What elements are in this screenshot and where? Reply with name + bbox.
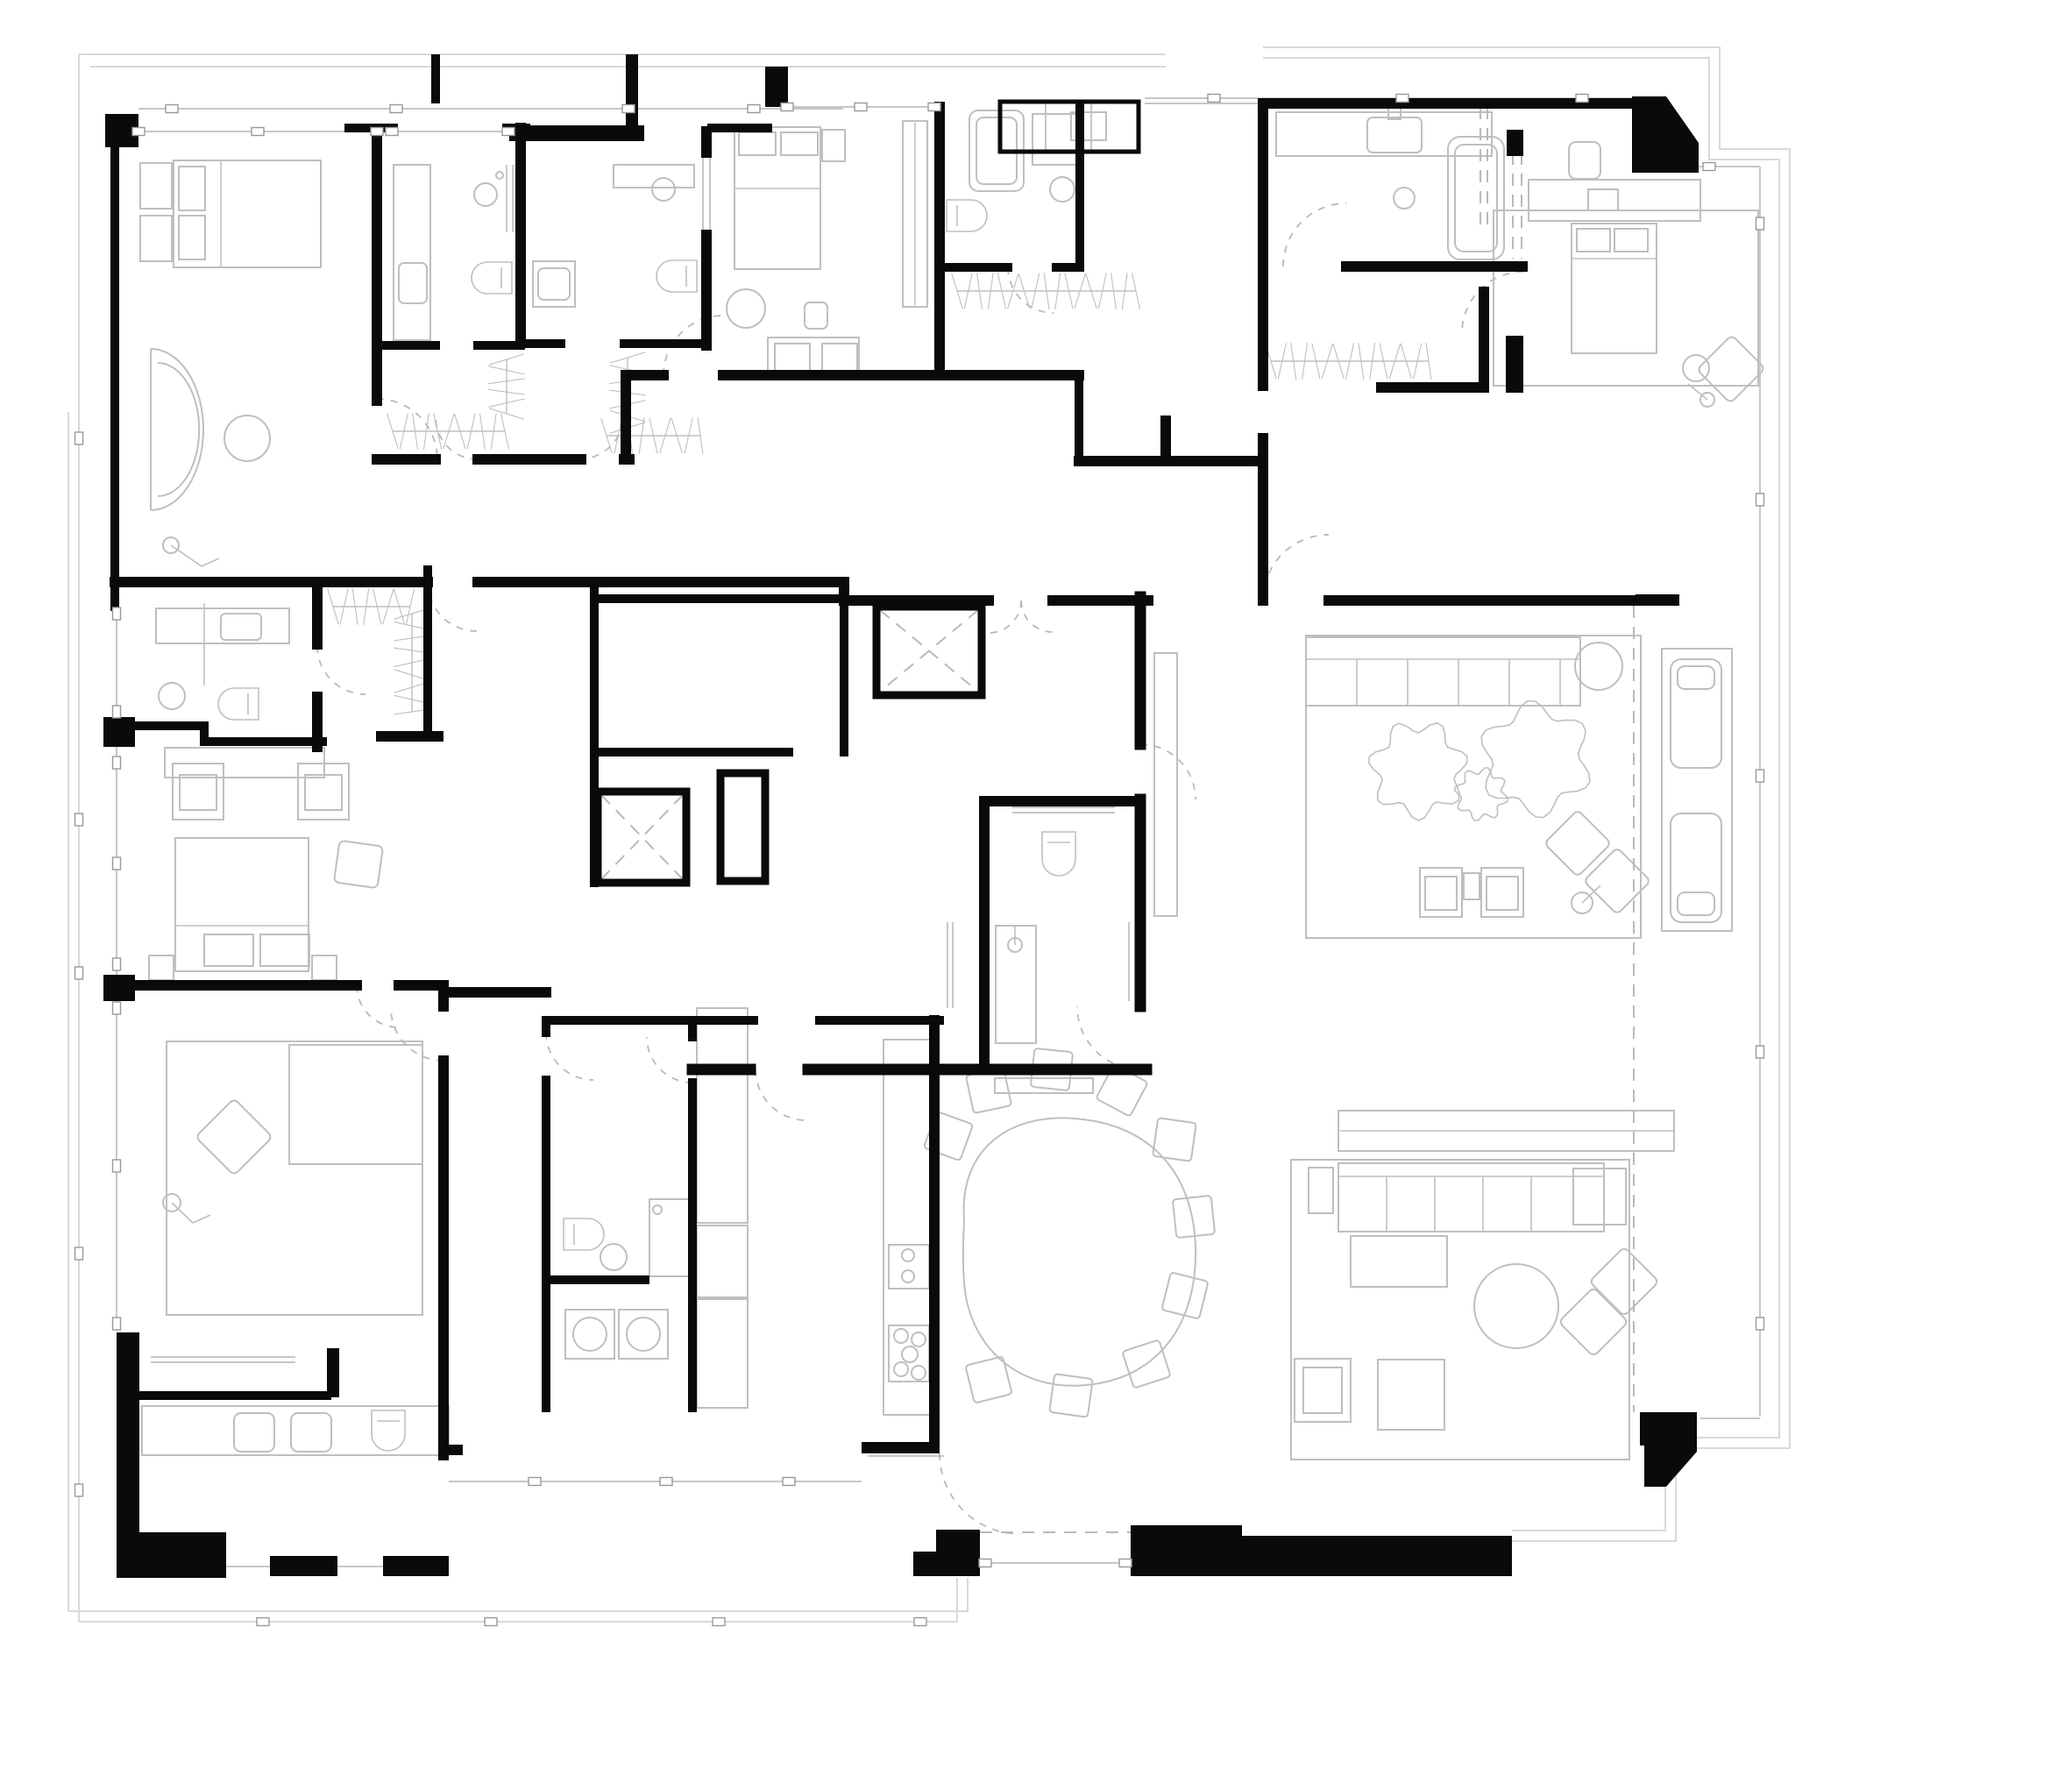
furniture-item xyxy=(140,216,172,261)
glazing-marker xyxy=(1703,163,1715,171)
furniture-layer xyxy=(140,107,1765,1460)
furniture-item xyxy=(1306,637,1580,706)
toilet-icon xyxy=(472,262,512,294)
furniture-item xyxy=(179,167,205,210)
walls xyxy=(103,54,1699,1578)
furniture-item xyxy=(291,1413,331,1452)
glazing-marker xyxy=(1756,1318,1764,1330)
furniture-circle xyxy=(1394,188,1415,209)
furniture-item xyxy=(312,955,337,980)
furniture-item xyxy=(1338,1163,1604,1232)
furniture-circle xyxy=(1575,643,1622,690)
door-swings-and-dashes xyxy=(317,107,1634,1534)
furniture-circle xyxy=(573,1318,607,1351)
glazing-marker xyxy=(1208,95,1220,103)
door-swing-arc xyxy=(377,399,437,459)
wall-pier xyxy=(626,54,638,135)
wall-block xyxy=(913,1530,980,1576)
furniture-item xyxy=(140,163,172,209)
floor-plan-svg xyxy=(0,0,2072,1783)
furniture-item xyxy=(1049,1374,1093,1417)
furniture-item xyxy=(775,344,810,371)
furniture-item xyxy=(180,775,216,810)
wall-pier xyxy=(117,1332,139,1534)
furniture-item xyxy=(739,132,776,155)
furniture-item xyxy=(805,302,827,329)
glazing-marker xyxy=(113,857,121,870)
toilet-icon xyxy=(656,260,697,292)
furniture-circle xyxy=(627,1318,660,1351)
furniture-line xyxy=(172,1203,193,1223)
floor-plan-page xyxy=(0,0,2072,1783)
furniture-item xyxy=(1487,877,1518,910)
glazing-marker xyxy=(1756,770,1764,782)
furniture-circle xyxy=(224,416,270,461)
glazing-marker xyxy=(75,813,83,826)
glazing-marker xyxy=(113,1318,121,1330)
toilet-icon xyxy=(218,688,259,720)
furniture-circle xyxy=(653,1205,662,1214)
coffee-table-cloud xyxy=(1369,723,1467,820)
wall-pier xyxy=(1506,336,1523,393)
furniture-circle xyxy=(894,1329,908,1343)
furniture-item xyxy=(1153,1118,1196,1161)
glazing-marker xyxy=(502,128,514,136)
furniture-item xyxy=(1529,180,1700,221)
glazing-marker xyxy=(386,128,398,136)
dashed-line xyxy=(601,795,683,879)
wall-pier xyxy=(1636,594,1679,606)
glazing-marker xyxy=(252,128,264,136)
furniture-circle xyxy=(902,1270,914,1282)
glazing-marker xyxy=(75,1484,83,1496)
wall-pier xyxy=(431,54,440,103)
furniture-circle xyxy=(902,1346,918,1362)
glazing-marker xyxy=(979,1559,991,1567)
furniture-item xyxy=(1558,1287,1628,1356)
furniture-item xyxy=(697,1008,748,1223)
wall-pier xyxy=(103,717,135,747)
furniture-item xyxy=(1464,873,1479,899)
furniture-circle xyxy=(727,289,765,328)
glazing-marker xyxy=(781,103,793,111)
wall-block xyxy=(1131,1525,1512,1576)
door-swing-arc xyxy=(391,1008,443,1061)
glazing-marker xyxy=(1119,1559,1132,1567)
furniture-item xyxy=(1303,1367,1342,1413)
furniture-circle xyxy=(894,1362,908,1376)
furniture-line xyxy=(193,1215,210,1223)
coffee-table-cloud xyxy=(1481,701,1590,818)
glazing-marker xyxy=(529,1478,541,1486)
furniture-circle xyxy=(1050,177,1075,202)
furniture-item xyxy=(1154,653,1177,916)
glazing-marker xyxy=(660,1478,672,1486)
dashed-line xyxy=(601,795,683,879)
furniture-item xyxy=(394,165,430,340)
furniture-item xyxy=(305,775,342,810)
door-swing-arc xyxy=(1140,744,1196,799)
glazing-marker xyxy=(390,105,402,113)
shaft-outline xyxy=(720,773,765,881)
furniture-item xyxy=(1577,229,1610,252)
furniture-circle xyxy=(600,1244,627,1270)
wall-pier xyxy=(327,1348,339,1397)
coffee-table-cloud xyxy=(1455,768,1508,820)
furniture-item xyxy=(399,263,427,303)
wall-block xyxy=(1640,1412,1697,1487)
glazing-marker xyxy=(622,105,635,113)
furniture-item xyxy=(204,934,253,966)
furniture-item xyxy=(822,130,845,161)
wall-pier xyxy=(438,1445,463,1455)
furniture-path xyxy=(151,349,203,510)
wall-pier xyxy=(862,1442,940,1453)
furniture-item xyxy=(1425,877,1457,910)
glazing-marker xyxy=(113,607,121,620)
glazing-marker xyxy=(855,103,867,111)
glazing-marker xyxy=(371,128,383,136)
furniture-circle xyxy=(474,183,497,206)
toilet-icon xyxy=(372,1410,405,1451)
furniture-item xyxy=(1351,1236,1447,1287)
furniture-item xyxy=(1588,189,1618,210)
door-swing-arc xyxy=(756,1069,806,1120)
furniture-item xyxy=(822,344,857,371)
furniture-item xyxy=(734,127,820,269)
glazing-marker xyxy=(113,958,121,970)
door-swing-arc xyxy=(1077,1006,1140,1069)
glazing-marker xyxy=(75,1247,83,1260)
furniture-item xyxy=(234,1413,274,1452)
glazing-marker xyxy=(1756,494,1764,506)
wall-pier xyxy=(1507,130,1523,156)
furniture-item xyxy=(697,1225,748,1297)
glazing-marker xyxy=(166,105,178,113)
wall-pier xyxy=(765,67,788,107)
furniture-item xyxy=(1276,112,1492,156)
wall-pier xyxy=(270,1556,337,1576)
wall-pier xyxy=(383,1556,449,1576)
door-swing-arc xyxy=(436,417,478,459)
glazing-marker xyxy=(1756,1046,1764,1058)
door-swing-arc xyxy=(1283,203,1346,266)
furniture-item xyxy=(1455,145,1497,252)
glazing-marker xyxy=(914,1618,926,1626)
furniture-circle xyxy=(902,1249,914,1261)
furniture-circle xyxy=(652,178,675,201)
terrace-outline xyxy=(68,1578,968,1611)
furniture-item xyxy=(1544,810,1611,877)
door-swing-arc xyxy=(428,582,477,631)
furniture-item xyxy=(1378,1360,1444,1430)
door-swing-arc xyxy=(317,646,365,694)
furniture-item xyxy=(167,1041,422,1315)
furniture-item xyxy=(649,1199,690,1276)
furniture-circle xyxy=(1474,1264,1558,1348)
furniture-item xyxy=(1614,229,1648,252)
toilet-icon xyxy=(947,200,987,231)
glazing-marker xyxy=(75,432,83,444)
glazing-marker xyxy=(748,105,760,113)
furniture-item xyxy=(1309,1168,1333,1213)
furniture-item xyxy=(1678,892,1714,915)
shaft-outline xyxy=(1000,102,1139,152)
glazing-marker xyxy=(113,1160,121,1172)
door-swing-arc xyxy=(578,414,624,459)
furniture-item xyxy=(538,268,570,300)
furniture-item xyxy=(1367,117,1422,153)
furniture-item xyxy=(1678,666,1714,689)
furniture-line xyxy=(171,545,202,566)
door-swing-arc xyxy=(647,1037,692,1083)
glazing-marker xyxy=(1576,95,1588,103)
furniture-item xyxy=(179,216,205,259)
furniture-circle xyxy=(912,1366,926,1380)
furniture-item xyxy=(883,1040,934,1415)
wall-block xyxy=(1632,96,1699,173)
terrace-outline xyxy=(1263,58,1779,1531)
furniture-circle xyxy=(496,172,503,179)
wall-pier xyxy=(103,975,135,1001)
glazing-marker xyxy=(257,1618,269,1626)
furniture-item xyxy=(1291,1160,1629,1460)
furniture-circle xyxy=(912,1332,926,1346)
furniture-item xyxy=(149,955,174,980)
furniture-item xyxy=(995,1078,1093,1093)
glazing-marker xyxy=(132,128,145,136)
furniture-item xyxy=(175,838,309,971)
furniture-item xyxy=(334,841,383,888)
furniture-item xyxy=(289,1045,422,1164)
toilet-icon xyxy=(564,1218,604,1250)
furniture-item xyxy=(697,1299,748,1408)
furniture-circle xyxy=(1683,355,1709,381)
door-swing-arc xyxy=(357,985,399,1027)
door-swing-arc xyxy=(940,1453,1020,1534)
glazing-marker xyxy=(75,967,83,979)
furniture-item xyxy=(174,160,321,267)
furniture-item xyxy=(260,934,309,966)
glazing-marker xyxy=(1756,217,1764,230)
glazing-marker xyxy=(1396,95,1409,103)
glazing-marker xyxy=(783,1478,795,1486)
glazing-marker xyxy=(113,706,121,718)
toilet-icon xyxy=(1042,832,1075,876)
glazing-marker xyxy=(485,1618,497,1626)
furniture-item xyxy=(1589,1247,1658,1316)
glazing-marker xyxy=(113,757,121,769)
furniture-item xyxy=(781,132,818,155)
door-swing-arc xyxy=(546,1033,593,1080)
furniture-item xyxy=(1569,142,1600,179)
furniture-item xyxy=(996,926,1036,1043)
shaft-outline xyxy=(598,792,686,883)
furniture-circle xyxy=(159,683,185,709)
glazing-marker xyxy=(928,103,940,111)
glazing-marker xyxy=(113,1002,121,1014)
door-swing-arc xyxy=(1263,535,1329,600)
furniture-item xyxy=(221,614,261,640)
furniture-line xyxy=(202,558,219,566)
furniture-item xyxy=(195,1098,273,1176)
glazing-marker xyxy=(713,1618,725,1626)
furniture-item xyxy=(1494,210,1758,386)
wall-pier xyxy=(117,1532,226,1578)
